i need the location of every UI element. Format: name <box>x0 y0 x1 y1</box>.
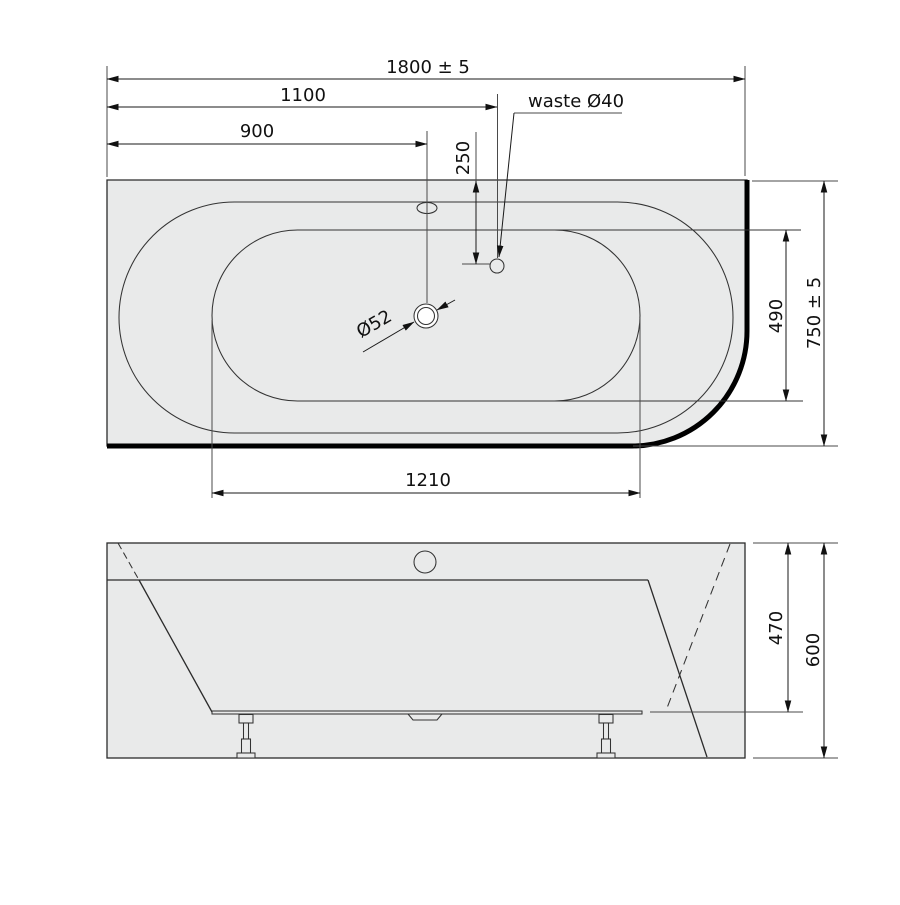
dim-length-to-waste: 1100 <box>107 85 497 107</box>
side-view: 470 600 <box>107 543 838 758</box>
dim-basin-length-label: 1210 <box>405 470 451 491</box>
dim-length-to-drain-label: 900 <box>240 121 274 142</box>
drain-hole-inner <box>418 308 435 325</box>
waste-callout-label: waste Ø40 <box>528 91 624 112</box>
top-view: 1800 ± 5 1100 900 250 waste Ø40 Ø5 <box>107 57 838 498</box>
dim-body-height: 470 <box>766 543 788 712</box>
drawing-canvas: 1800 ± 5 1100 900 250 waste Ø40 Ø5 <box>0 0 900 905</box>
bathtub-technical-drawing: 1800 ± 5 1100 900 250 waste Ø40 Ø5 <box>0 0 900 900</box>
dim-overall-length-label: 1800 ± 5 <box>386 57 470 78</box>
dim-waste-offset-label: 250 <box>453 141 474 175</box>
tub-outline-side <box>107 543 745 758</box>
dim-overall-width: 750 ± 5 <box>804 181 825 446</box>
dim-total-height: 600 <box>803 543 824 758</box>
dim-body-height-label: 470 <box>766 611 787 645</box>
dim-length-to-waste-label: 1100 <box>280 85 326 106</box>
dim-basin-length: 1210 <box>212 470 640 493</box>
dim-overall-length: 1800 ± 5 <box>107 57 745 79</box>
dim-length-to-drain: 900 <box>107 121 427 144</box>
dim-overall-width-label: 750 ± 5 <box>804 277 825 349</box>
dim-basin-width-label: 490 <box>766 299 787 333</box>
dim-total-height-label: 600 <box>803 633 824 667</box>
dim-basin-width: 490 <box>766 230 787 401</box>
